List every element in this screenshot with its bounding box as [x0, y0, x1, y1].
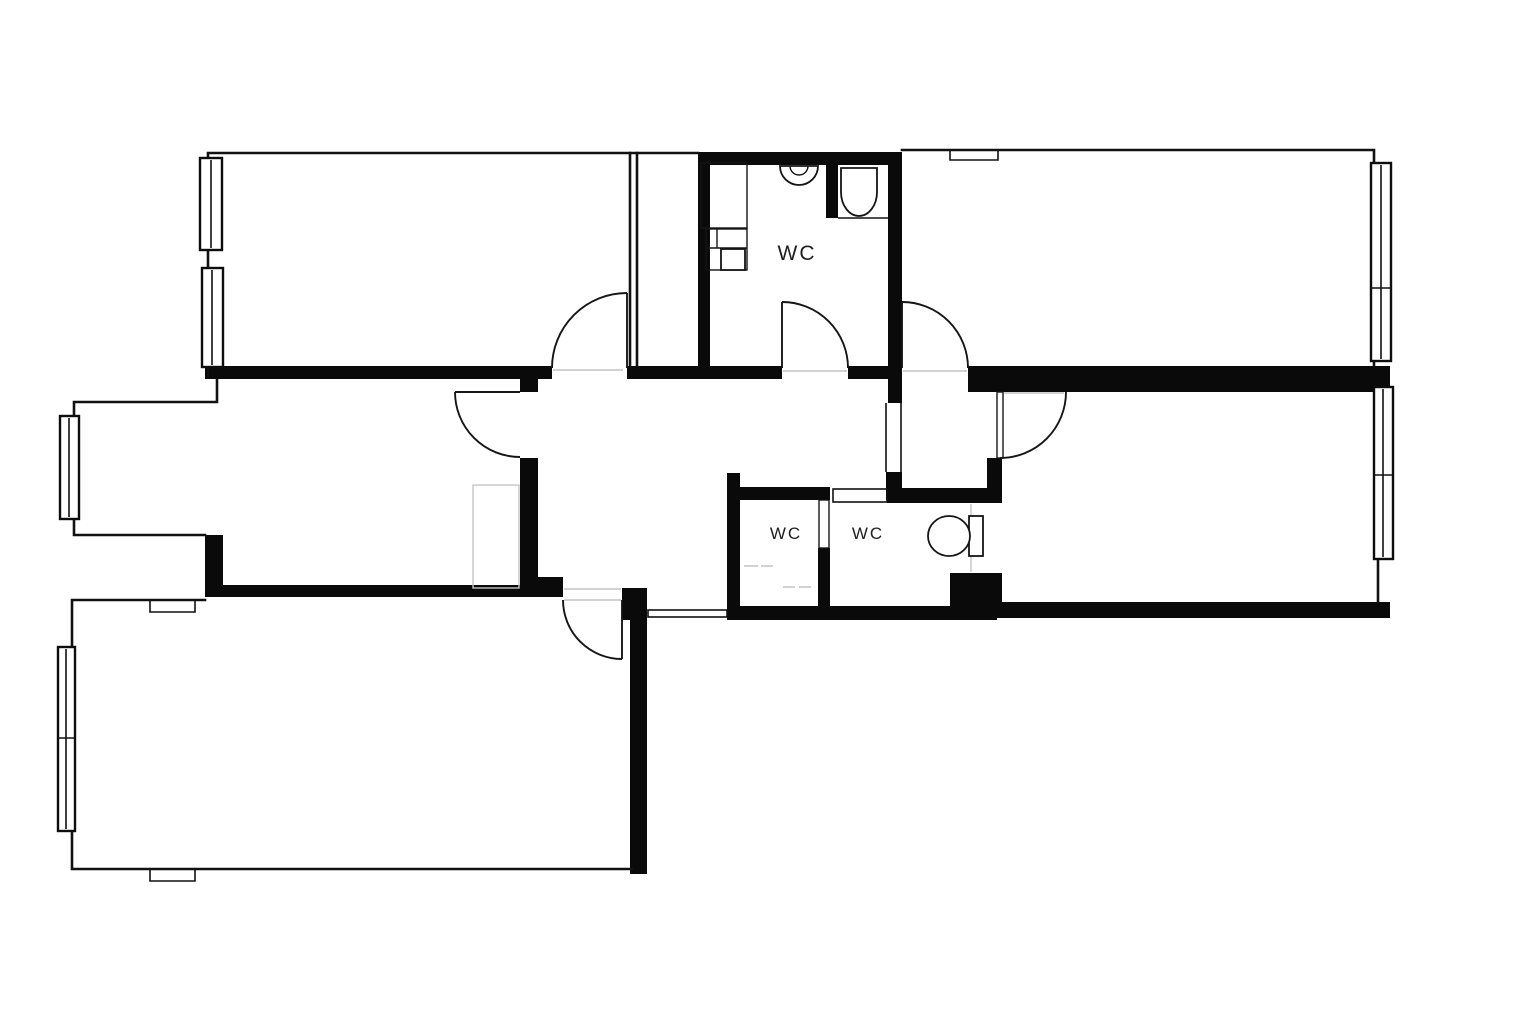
toilet-niche-stub: [826, 165, 838, 218]
wc-top-wall-right: [887, 488, 997, 503]
room-top-right: [905, 160, 1373, 363]
room-bottom-left: [76, 603, 629, 867]
hall-west-stub: [520, 379, 538, 392]
entry-threshold: [648, 610, 727, 617]
wall-segment: [205, 366, 552, 379]
hall-west-wall: [520, 458, 538, 585]
wall-segment: [968, 379, 1390, 392]
bottom-left-bottom-notch: [150, 869, 195, 881]
wc-partition-lower: [818, 548, 830, 607]
bottom-left-east-wall: [630, 620, 647, 874]
window-icon: [60, 416, 79, 519]
wc-top-wall-left: [727, 487, 830, 500]
top-right-notch: [950, 151, 998, 160]
middle-left-bottom-wall: [205, 585, 563, 597]
utility-shaft: [637, 155, 698, 365]
window-icon: [1374, 387, 1393, 559]
wc-right-label: WC: [852, 524, 884, 543]
bathroom-east-wall: [888, 165, 902, 403]
bathroom-west-wall: [698, 165, 710, 379]
window-icon: [1371, 163, 1391, 361]
window-icon: [202, 268, 223, 367]
entry-nook: [648, 591, 726, 611]
wc-left: [740, 501, 817, 605]
window-icon: [58, 647, 75, 831]
room-middle-left: [80, 385, 517, 582]
corner-chunk: [622, 588, 647, 620]
step-chunk: [205, 535, 223, 592]
hall-vestibule-opening-jambs: [886, 403, 901, 472]
right-room-west-stub: [987, 458, 1002, 503]
floor-plan-canvas: WC WC WC: [0, 0, 1536, 1024]
room-top-left: [212, 158, 627, 363]
toilet-icon: [928, 516, 983, 556]
room-right: [1003, 393, 1377, 601]
vestibule: [903, 381, 986, 486]
wall-segment: [968, 366, 1390, 379]
shaft-walls: [630, 153, 637, 366]
window-icon: [200, 158, 222, 250]
wc-bottom-wall: [727, 606, 997, 620]
wc-partition-door-leaf: [819, 500, 829, 548]
wc-se-chunk: [950, 573, 1002, 606]
right-room-bottom-wall: [985, 602, 1390, 618]
bathroom-wc-label: WC: [778, 242, 817, 265]
wc-left-label: WC: [770, 524, 802, 543]
